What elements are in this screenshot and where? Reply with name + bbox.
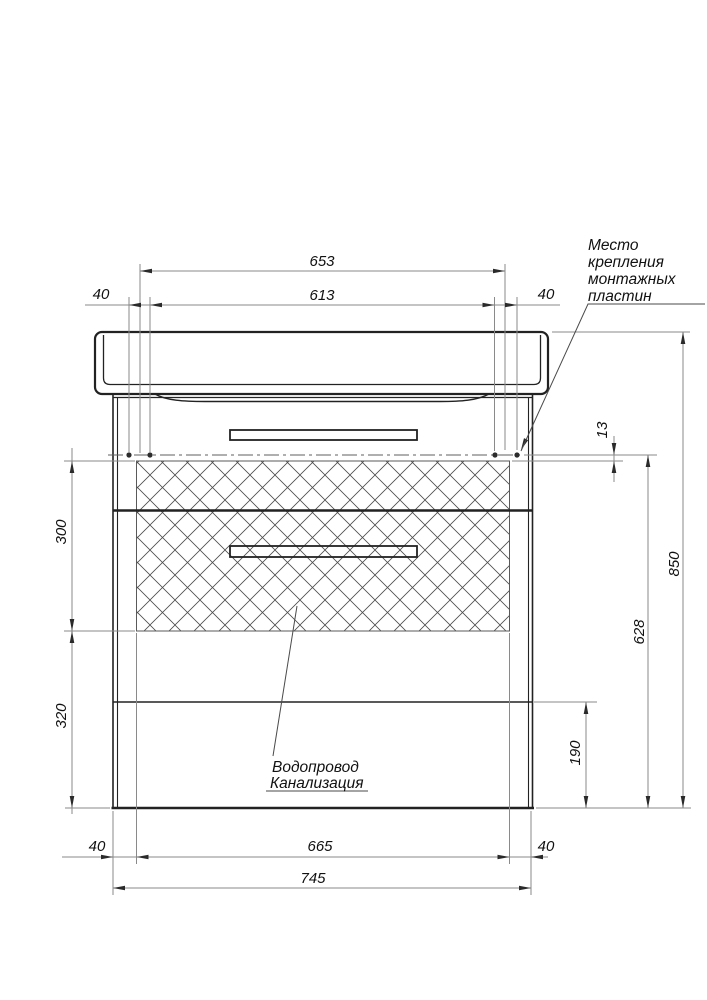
dim-label-bottom-right-offset: 40 xyxy=(538,838,555,855)
dim-label-total-height: 850 xyxy=(666,551,683,577)
note-line: Канализация xyxy=(270,775,364,792)
dim-label-top-span: 653 xyxy=(309,253,335,270)
plumbing-note: Водопровод Канализация xyxy=(270,759,364,792)
dim-label-opening-width: 665 xyxy=(307,838,333,855)
dim-label-top-inner-span: 613 xyxy=(309,287,335,304)
note-line: Водопровод xyxy=(272,759,359,776)
mounting-plates-note: Место крепления монтажных пластин xyxy=(588,237,680,305)
mounting-plate-dot xyxy=(514,452,519,457)
dim-label-plate-offset: 13 xyxy=(594,421,611,438)
dim-label-side-lower: 320 xyxy=(53,703,70,729)
mounting-plate-dot xyxy=(492,452,497,457)
dim-label-opening-height: 628 xyxy=(631,619,648,645)
dim-label-side-upper: 300 xyxy=(53,519,70,545)
mounting-plate-dot xyxy=(147,452,152,457)
dim-label-top-right-offset: 40 xyxy=(538,286,555,303)
sink-inner-rim xyxy=(104,335,541,385)
mounting-plate-dot xyxy=(126,452,131,457)
dim-label-bottom-left-offset: 40 xyxy=(89,838,106,855)
vanity-dimension-drawing: 653 613 40 40 300 320 13 628 850 190 40 … xyxy=(0,0,707,1000)
note-line: пластин xyxy=(588,288,652,305)
technical-drawing-page: 653 613 40 40 300 320 13 628 850 190 40 … xyxy=(0,0,707,1000)
note-line: Место xyxy=(588,237,639,254)
note-line: крепления xyxy=(588,254,664,271)
dim-label-top-left-offset: 40 xyxy=(93,286,110,303)
dim-label-total-width: 745 xyxy=(300,870,326,887)
upper-drawer-handle xyxy=(230,430,417,440)
furniture-outline xyxy=(95,332,548,808)
dim-label-lower-front-height: 190 xyxy=(567,740,584,766)
note-line: монтажных xyxy=(588,271,677,288)
